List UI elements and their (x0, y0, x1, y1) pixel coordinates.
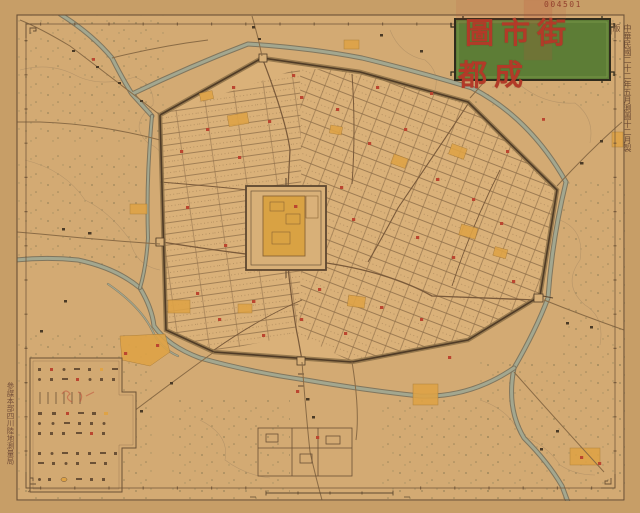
imperial-city (246, 178, 326, 278)
edition-note: 中華民國二十二年五月測圖十二月製版 (611, 24, 633, 154)
serial-number: 004501 (544, 0, 582, 9)
agency-note: 參謀本部四川陸地測量局 (5, 382, 15, 467)
legend-box (30, 358, 136, 492)
scanned-map-page: { "document": { "kind": "historical city… (0, 0, 640, 513)
map-canvas: 004501 圖市街都成 中華民國二十二年五月測圖十二月製版 參謀本部四川陸地測… (0, 0, 640, 513)
map-title: 圖市街都成 (458, 28, 608, 76)
